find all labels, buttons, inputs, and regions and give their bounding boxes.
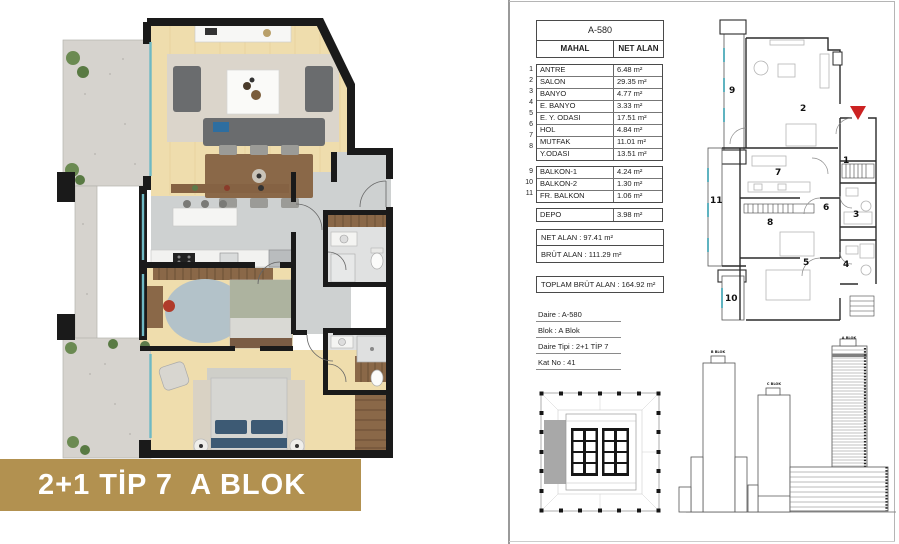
svg-text:8: 8 — [767, 218, 773, 228]
row-number: 2 — [520, 75, 533, 86]
schematic-door-arcs — [730, 118, 852, 276]
french-balcony — [75, 186, 97, 340]
info-kat-no: Kat No : 41 — [536, 356, 621, 370]
row-number: 8 — [520, 141, 533, 152]
table-row: BALKON-14.24 m² — [537, 167, 662, 179]
rendered-floorplan — [55, 14, 395, 464]
row-number: 1 — [520, 64, 533, 75]
row-number: 3 — [520, 86, 533, 97]
col-room-header: MAHAL — [537, 41, 614, 57]
depo-table: DEPO 3.98 m² — [536, 208, 663, 222]
a-blok-label: A BLOK — [842, 336, 857, 340]
info-daire-tipi: Daire Tipi : 2+1 TİP 7 — [536, 340, 621, 354]
net-alan-box: NET ALAN : 97.41 m² — [536, 229, 664, 246]
table-row: E. Y. ODASI17.51 m² — [537, 113, 662, 125]
row-number: 9 — [520, 166, 533, 177]
podium-elevation — [790, 467, 888, 511]
table-row: HOL4.84 m² — [537, 125, 662, 137]
info-blok: Blok : A Blok — [536, 324, 621, 338]
floorplan-sheet: 2+1 TİP 7 A BLOK A-580 MAHAL NET ALAN AN… — [0, 0, 899, 544]
row-number: 11 — [520, 188, 533, 199]
schematic-plan-svg: 1 2 3 4 5 6 7 8 9 10 11 — [700, 8, 898, 324]
svg-text:7: 7 — [775, 168, 781, 178]
schematic-furniture — [748, 40, 874, 300]
balcony-area-table: BALKON-14.24 m² BALKON-21.30 m² FR. BALK… — [536, 166, 663, 203]
key-plan-unit-highlight — [544, 420, 566, 484]
table-row: MUTFAK11.01 m² — [537, 137, 662, 149]
a-blok-elevation — [832, 339, 867, 471]
svg-text:1: 1 — [843, 156, 849, 166]
brut-alan-box: BRÜT ALAN : 111.29 m² — [536, 245, 664, 263]
table-row: FR. BALKON1.06 m² — [537, 191, 662, 202]
row-number: 10 — [520, 177, 533, 188]
svg-text:6: 6 — [823, 203, 829, 213]
row-number: 7 — [520, 130, 533, 141]
panel-divider — [508, 0, 510, 544]
table-row: BALKON-21.30 m² — [537, 179, 662, 191]
toplam-brut-alan-box: TOPLAM BRÜT ALAN : 164.92 m² — [536, 276, 664, 293]
type-banner-label: 2+1 TİP 7 A BLOK — [0, 459, 361, 511]
col-area-header: NET ALAN — [614, 41, 663, 57]
type-banner: 2+1 TİP 7 A BLOK — [0, 459, 361, 511]
table-row: Y.ODASI13.51 m² — [537, 149, 662, 160]
rendered-floorplan-svg — [55, 14, 395, 464]
schematic-plan: 1 2 3 4 5 6 7 8 9 10 11 — [700, 8, 898, 324]
elevations-svg: B BLOK C BLOK — [656, 336, 898, 542]
entrance-marker — [850, 106, 866, 120]
table-row: BANYO4.77 m² — [537, 89, 662, 101]
svg-text:5: 5 — [803, 258, 809, 268]
key-plan-core — [566, 414, 636, 490]
schematic-french-balcony — [708, 148, 722, 266]
svg-text:3: 3 — [853, 210, 859, 220]
svg-text:10: 10 — [725, 294, 738, 304]
b-blok-label: B BLOK — [711, 350, 726, 354]
row-number: 4 — [520, 97, 533, 108]
table-row: DEPO 3.98 m² — [537, 209, 662, 221]
svg-text:9: 9 — [729, 86, 735, 96]
b-blok-elevation — [679, 356, 747, 512]
table-row: E. BANYO3.33 m² — [537, 101, 662, 113]
key-plan — [538, 390, 664, 516]
room-area-table: ANTRE6.48 m² SALON29.35 m² BANYO4.77 m² … — [536, 64, 663, 161]
c-blok-label: C BLOK — [767, 382, 782, 386]
c-blok-elevation — [748, 388, 790, 512]
building-elevations: B BLOK C BLOK — [656, 336, 898, 542]
table-row: ANTRE6.48 m² — [537, 65, 662, 77]
svg-text:2: 2 — [800, 104, 806, 114]
row-number: 6 — [520, 119, 533, 130]
unit-code: A-580 — [588, 25, 612, 35]
unit-code-header: A-580 — [536, 20, 664, 41]
info-daire: Daire : A-580 — [536, 308, 621, 322]
table-column-headers: MAHAL NET ALAN — [536, 40, 664, 58]
highlighted-floor — [832, 354, 867, 358]
row-number: 5 — [520, 108, 533, 119]
table-row: SALON29.35 m² — [537, 77, 662, 89]
svg-text:4: 4 — [843, 260, 849, 270]
svg-text:11: 11 — [710, 196, 723, 206]
key-plan-svg — [538, 390, 664, 516]
right-frame-top — [509, 1, 895, 2]
